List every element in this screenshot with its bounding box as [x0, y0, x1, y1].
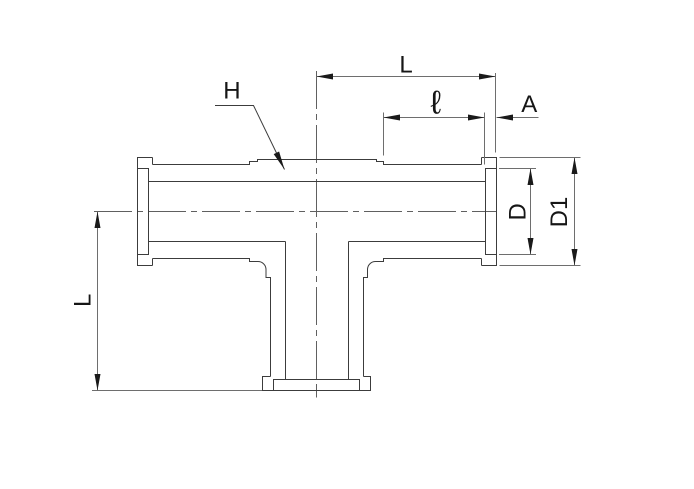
svg-text:L: L: [70, 294, 97, 307]
svg-text:H: H: [223, 78, 240, 105]
svg-text:L: L: [399, 51, 412, 78]
svg-text:D1: D1: [546, 197, 573, 228]
svg-text:A: A: [521, 91, 537, 118]
svg-text:ℓ: ℓ: [430, 83, 441, 120]
svg-text:D: D: [504, 203, 531, 220]
